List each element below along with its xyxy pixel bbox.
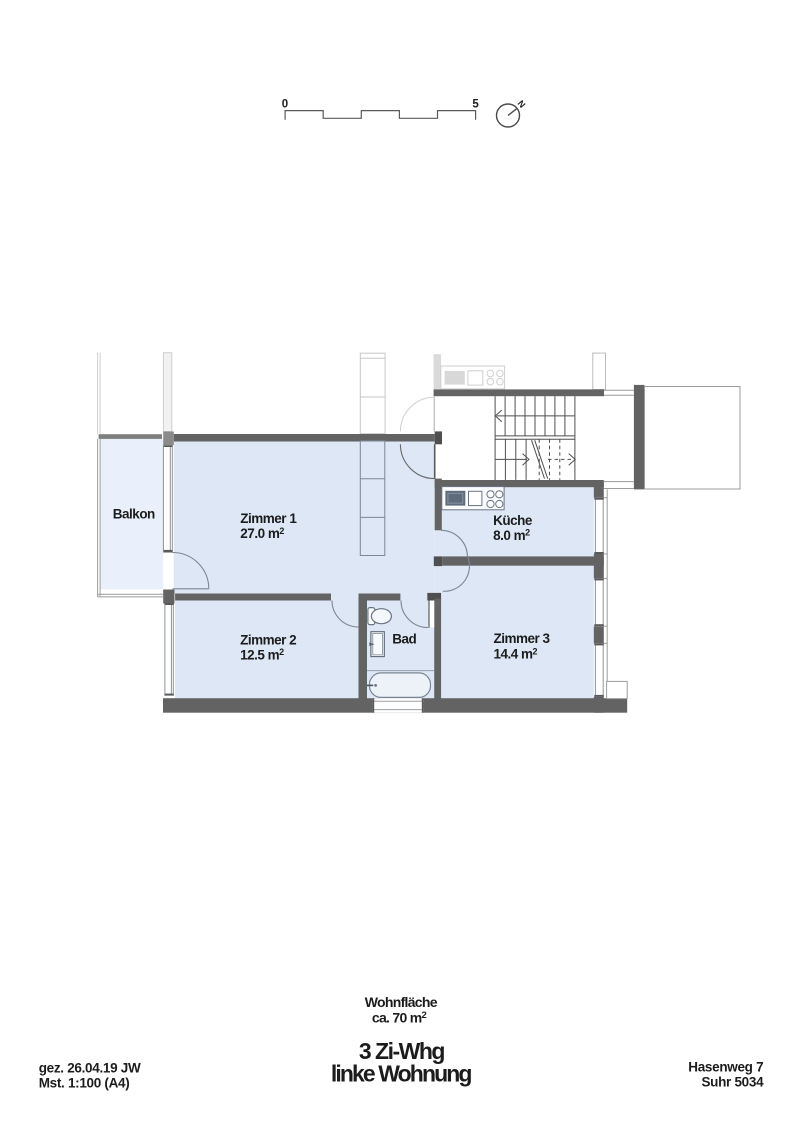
svg-text:Mst. 1:100 (A4): Mst. 1:100 (A4) (39, 1075, 130, 1090)
svg-text:14.4 m2: 14.4 m2 (494, 646, 538, 661)
svg-text:Wohnfläche: Wohnfläche (365, 994, 438, 1010)
svg-text:5: 5 (472, 99, 479, 111)
svg-text:Suhr 5034: Suhr 5034 (701, 1075, 764, 1090)
svg-text:gez. 26.04.19 JW: gez. 26.04.19 JW (39, 1061, 141, 1076)
svg-text:linke Wohnung: linke Wohnung (331, 1061, 472, 1087)
svg-text:Zimmer 3: Zimmer 3 (494, 631, 551, 646)
svg-text:ca. 70 m2: ca. 70 m2 (372, 1009, 427, 1025)
svg-text:Bad: Bad (392, 632, 416, 647)
svg-text:Zimmer 2: Zimmer 2 (240, 632, 296, 647)
svg-text:Balkon: Balkon (113, 507, 155, 522)
svg-text:0: 0 (282, 99, 288, 111)
svg-text:27.0 m2: 27.0 m2 (240, 526, 284, 541)
svg-text:Hasenweg 7: Hasenweg 7 (688, 1060, 763, 1075)
svg-text:8.0 m2: 8.0 m2 (493, 528, 530, 543)
svg-text:Küche: Küche (493, 513, 533, 528)
svg-text:12.5 m2: 12.5 m2 (240, 647, 284, 662)
svg-text:Zimmer 1: Zimmer 1 (240, 511, 297, 526)
